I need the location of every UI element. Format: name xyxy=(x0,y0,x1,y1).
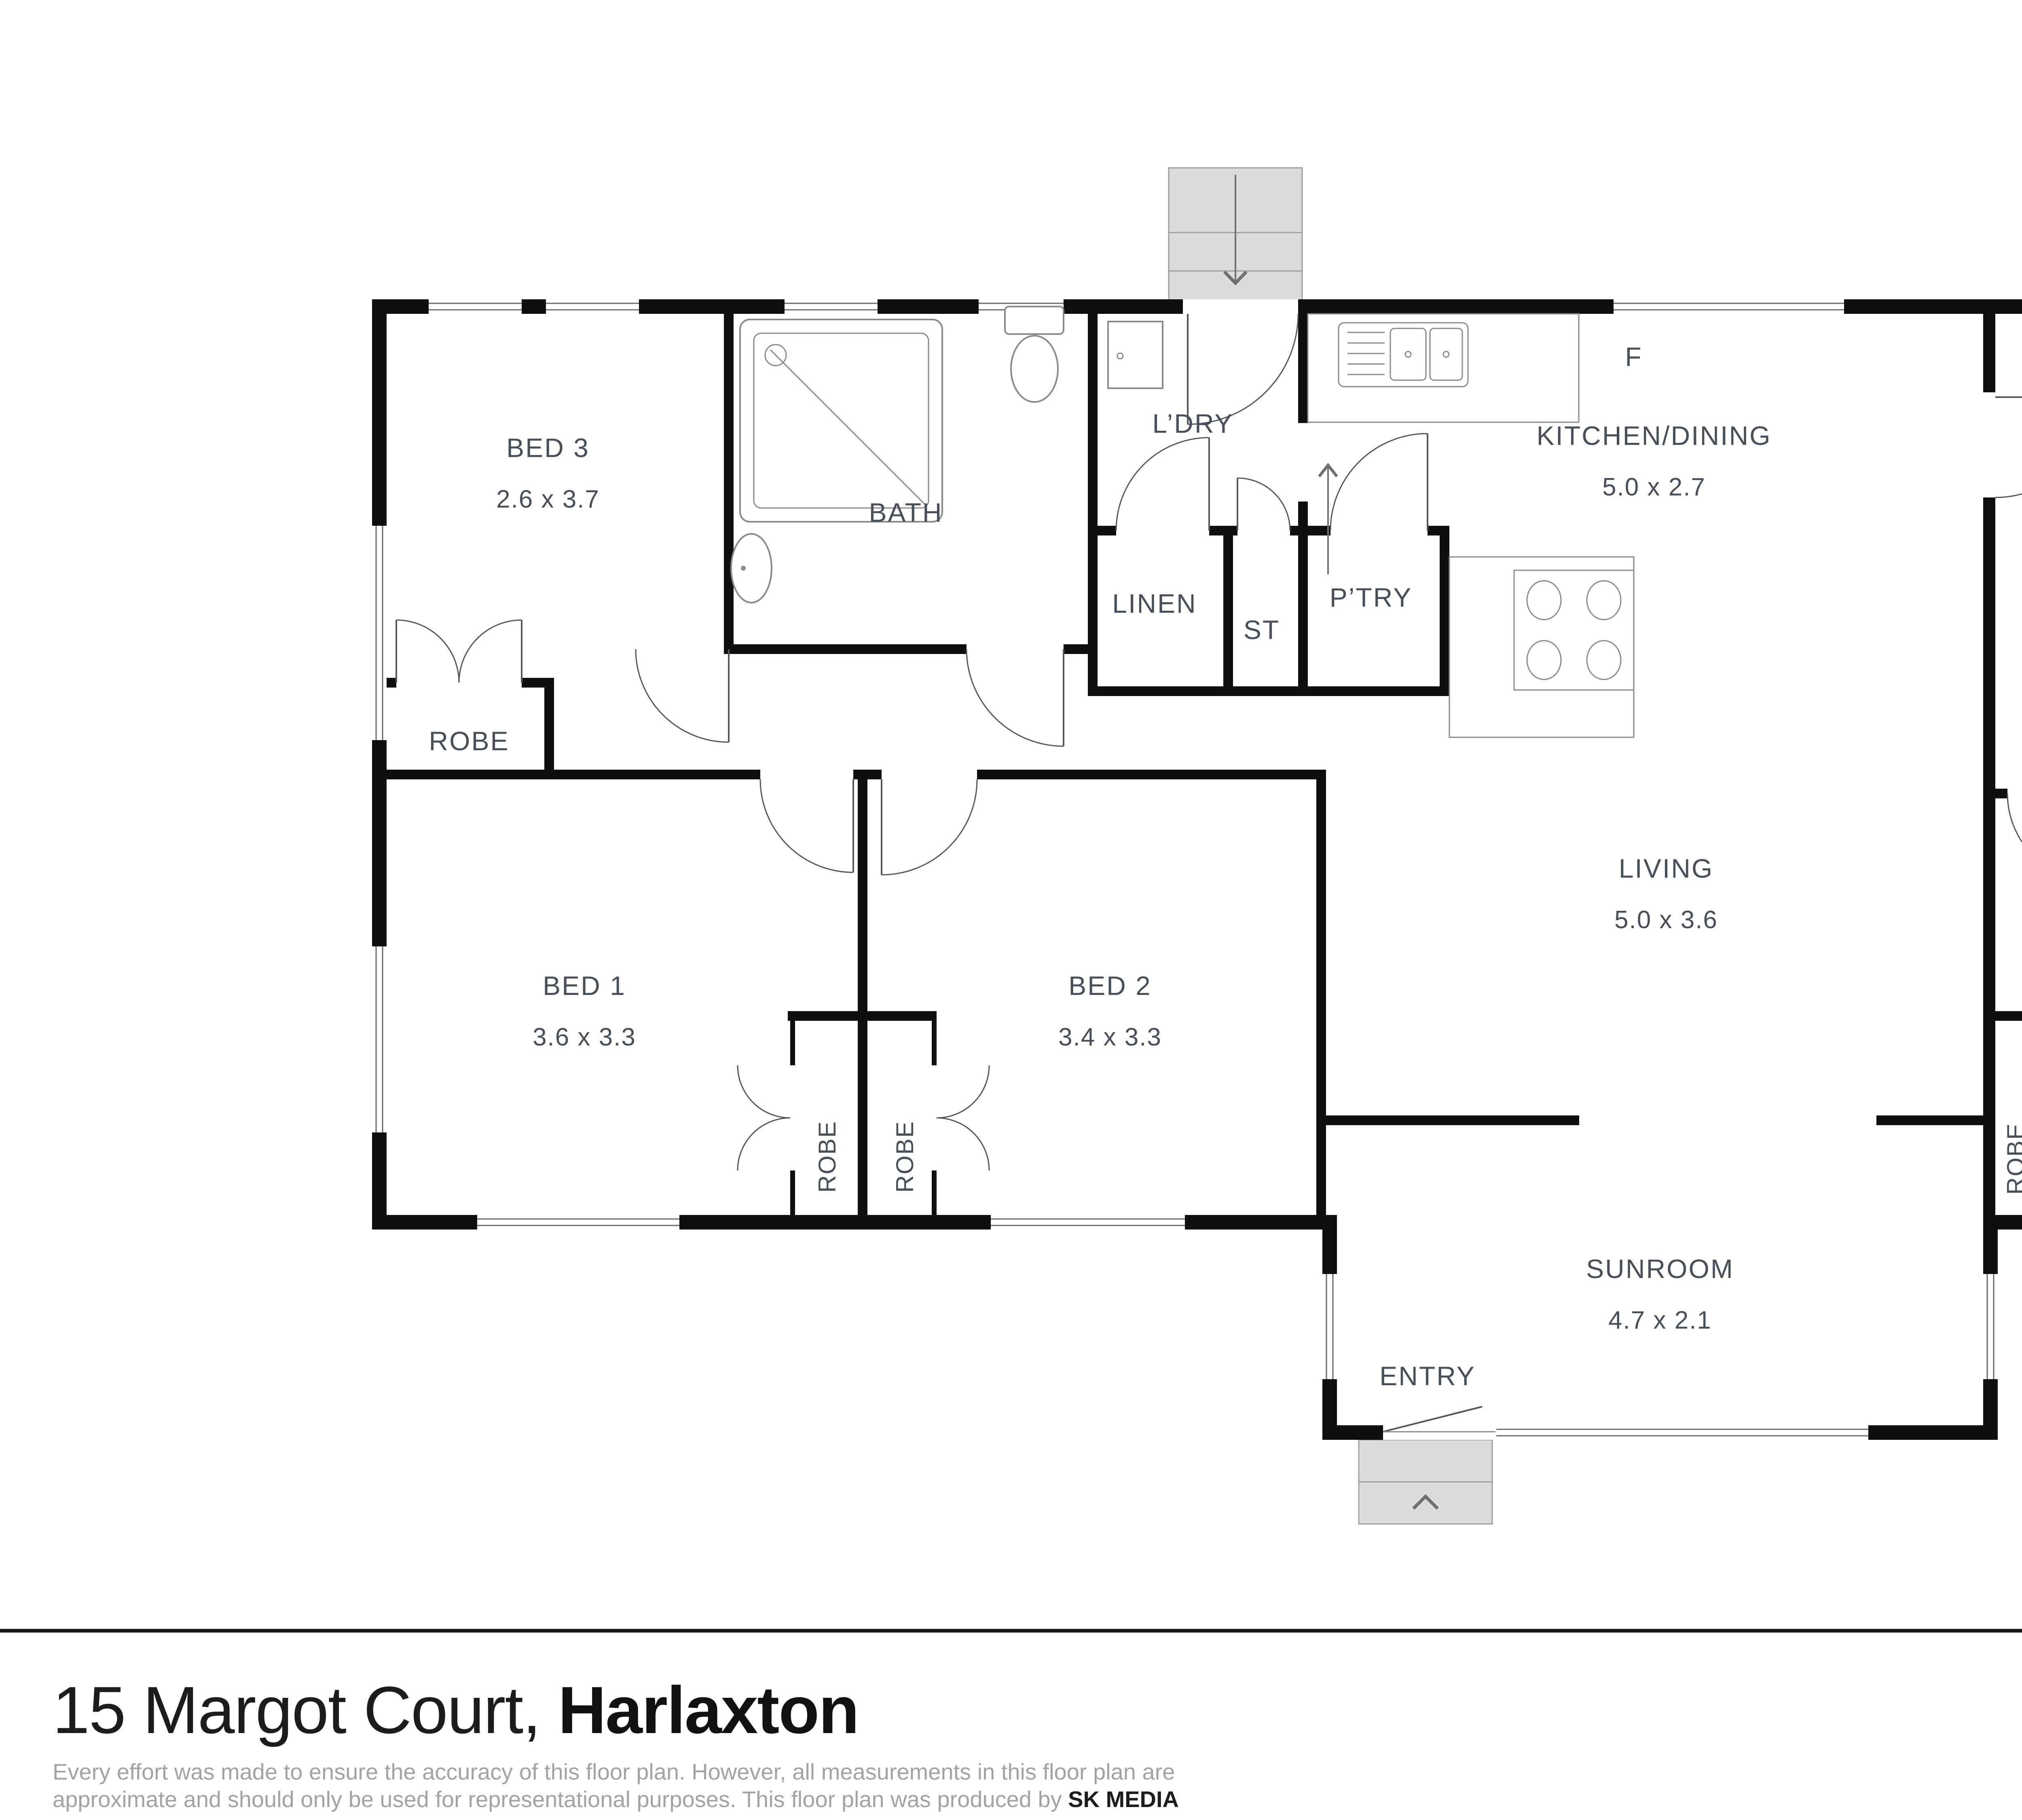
room-label-fridge: F xyxy=(1625,342,1642,372)
door-opening xyxy=(760,770,853,779)
room-label-bed2: BED 2 xyxy=(1068,971,1152,1001)
address-suburb: Harlaxton xyxy=(558,1673,859,1747)
room-dims-bed3: 2.6 x 3.7 xyxy=(496,485,600,513)
disclaimer-line-2-text: approximate and should only be used for … xyxy=(53,1786,1068,1812)
wall-segment xyxy=(1316,779,1326,1215)
door-opening xyxy=(1116,526,1209,535)
room-label-bath: BATH xyxy=(869,497,943,527)
door-opening xyxy=(882,770,977,779)
window xyxy=(991,1215,1185,1230)
laundry-tub xyxy=(1108,322,1163,388)
door-opening xyxy=(1330,526,1428,535)
wall-segment xyxy=(1995,1011,2022,1021)
wall-segment xyxy=(1876,1115,1983,1125)
wall-segment xyxy=(858,1021,867,1215)
room-label-kitchen: KITCHEN/DINING xyxy=(1536,421,1771,451)
wall-segment xyxy=(1298,535,1308,696)
room-label-entry: ENTRY xyxy=(1379,1361,1476,1391)
window xyxy=(372,526,387,740)
toilet-cistern xyxy=(1005,307,1064,334)
background xyxy=(0,0,2022,1820)
room-label-bed1: BED 1 xyxy=(543,971,626,1001)
wall-segment xyxy=(858,779,867,1021)
room-label-ldry: L’DRY xyxy=(1153,408,1234,438)
door-opening xyxy=(1237,526,1290,535)
window xyxy=(546,299,639,314)
wall-segment xyxy=(544,678,554,779)
door-opening xyxy=(2007,789,2022,798)
wall-segment xyxy=(1088,686,1449,696)
wall-segment xyxy=(932,1170,937,1215)
toilet-bowl xyxy=(1011,336,1058,402)
wall-segment xyxy=(1316,1115,1579,1125)
wall-segment xyxy=(1983,497,1995,789)
entry-step xyxy=(1359,1482,1492,1524)
wall-segment xyxy=(1223,526,1233,696)
room-label-bed3: BED 3 xyxy=(506,433,590,463)
door-opening xyxy=(967,644,1064,654)
wall-segment xyxy=(863,1011,937,1021)
room-dims-bed1: 3.6 x 3.3 xyxy=(533,1023,636,1051)
door-opening xyxy=(1183,299,1298,314)
room-label-robe3: ROBE xyxy=(429,726,509,756)
window xyxy=(429,299,522,314)
wall-segment xyxy=(1983,789,1995,1215)
wall-segment xyxy=(724,644,967,654)
room-dims-bed2: 3.4 x 3.3 xyxy=(1058,1023,1162,1051)
wall-segment xyxy=(790,1021,795,1065)
wall-segment xyxy=(1440,526,1449,696)
wall-segment xyxy=(724,314,734,644)
window xyxy=(1496,1425,1868,1440)
window xyxy=(372,946,387,1132)
disclaimer-line-2: approximate and should only be used for … xyxy=(53,1786,1179,1812)
window xyxy=(785,299,878,314)
wall-segment xyxy=(1298,314,1308,423)
room-label-linen: LINEN xyxy=(1112,588,1197,618)
property-address: 15 Margot Court, Harlaxton xyxy=(53,1673,859,1747)
room-label-living: LIVING xyxy=(1619,853,1713,883)
address-street: 15 Margot Court, xyxy=(53,1673,558,1747)
wall-segment xyxy=(1983,1215,2022,1230)
window xyxy=(1322,1274,1337,1379)
wall-segment xyxy=(1088,314,1098,696)
room-dims-living: 5.0 x 3.6 xyxy=(1614,906,1718,934)
room-label-robe4: ROBE xyxy=(2002,1123,2022,1195)
room-label-ptry: P’TRY xyxy=(1330,582,1413,612)
room-dims-sunroom: 4.7 x 2.1 xyxy=(1608,1306,1712,1334)
room-label-sunroom: SUNROOM xyxy=(1586,1254,1734,1284)
wall-segment xyxy=(788,1011,863,1021)
window xyxy=(477,1215,679,1230)
room-label-robe2: ROBE xyxy=(891,1121,918,1193)
wall-segment xyxy=(1064,644,1088,654)
vanity-tap-icon xyxy=(741,566,746,571)
wall-segment xyxy=(790,1170,795,1215)
disclaimer-line-1: Every effort was made to ensure the accu… xyxy=(53,1759,1175,1784)
producer-name: SK MEDIA xyxy=(1068,1786,1179,1812)
floor-plan-page: BED 3 2.6 x 3.7 BATH L’DRY LINEN ST P’TR… xyxy=(0,0,2022,1820)
wall-segment xyxy=(1983,314,1995,392)
window xyxy=(1983,1274,1998,1379)
entry-step xyxy=(1359,1440,1492,1482)
room-dims-kitchen: 5.0 x 2.7 xyxy=(1602,473,1706,501)
room-label-st: ST xyxy=(1244,615,1280,645)
vanity-basin xyxy=(731,534,772,603)
floor-plan-canvas: BED 3 2.6 x 3.7 BATH L’DRY LINEN ST P’TR… xyxy=(0,0,2022,1820)
window xyxy=(1614,299,1844,314)
room-label-robe1: ROBE xyxy=(814,1121,841,1193)
wall-segment xyxy=(932,1021,937,1065)
